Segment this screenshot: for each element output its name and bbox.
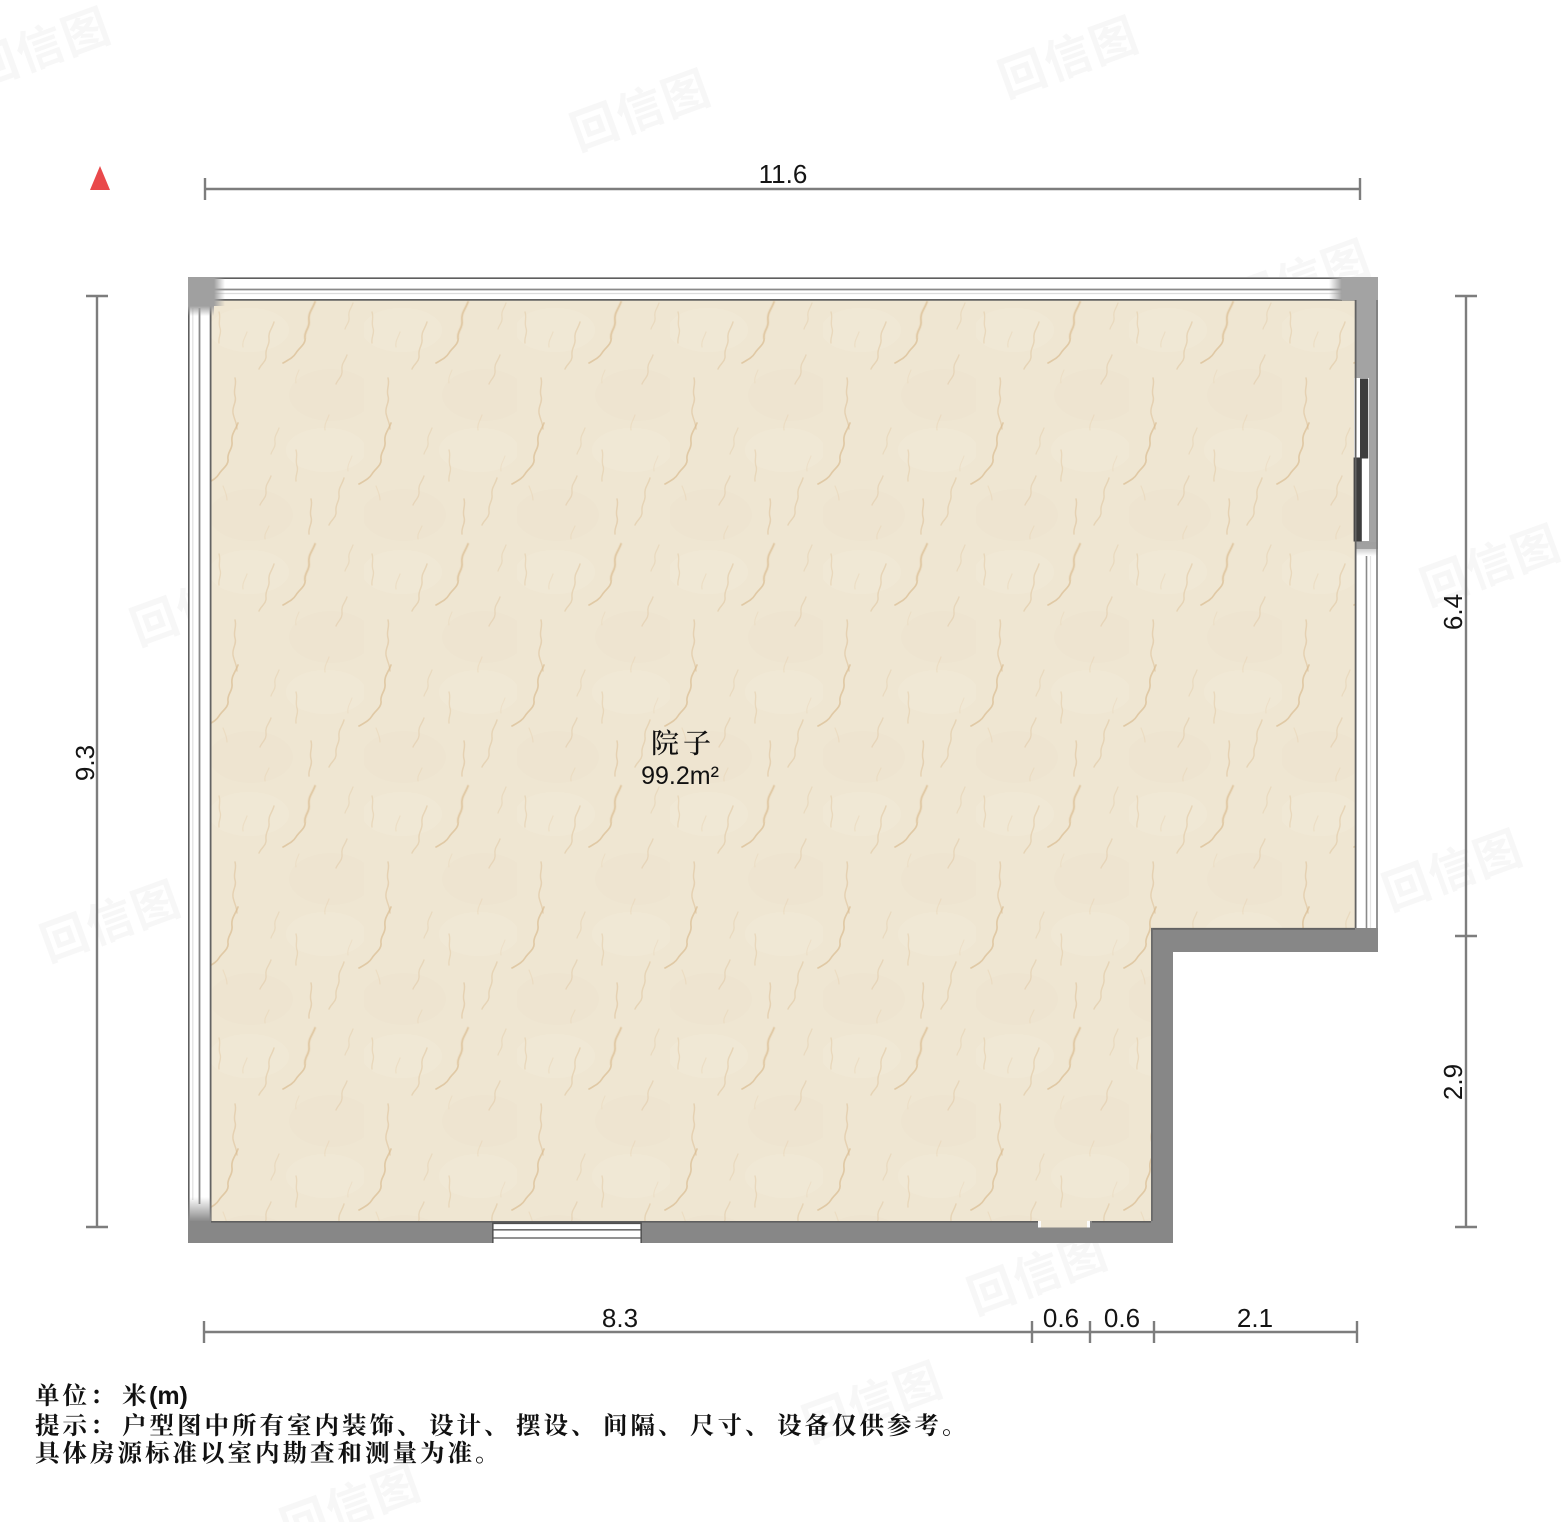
svg-text:0.6: 0.6 [1104, 1303, 1140, 1333]
svg-text:8.3: 8.3 [602, 1303, 638, 1333]
svg-text:0.6: 0.6 [1043, 1303, 1079, 1333]
svg-text:11.6: 11.6 [759, 159, 808, 189]
svg-text:6.4: 6.4 [1438, 594, 1468, 630]
svg-text:2.9: 2.9 [1438, 1064, 1468, 1100]
svg-text:(m): (m) [149, 1382, 188, 1410]
svg-text:99.2m²: 99.2m² [641, 762, 719, 790]
svg-text:2.1: 2.1 [1237, 1303, 1273, 1333]
svg-text:9.3: 9.3 [70, 745, 100, 781]
